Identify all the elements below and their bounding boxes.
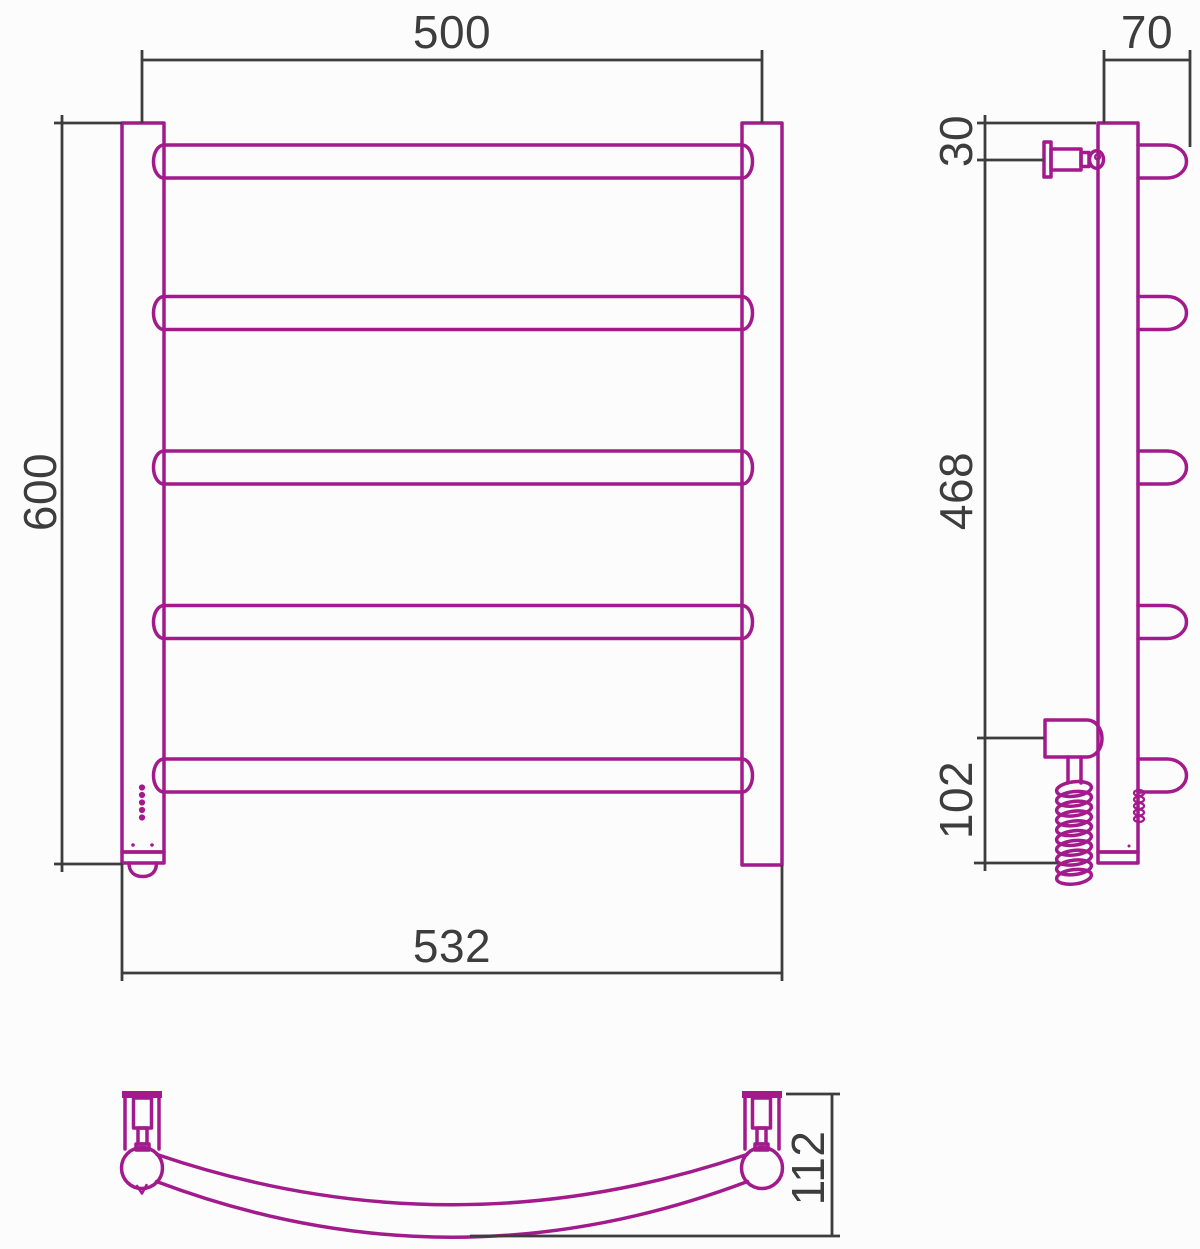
dim-label-side-span: 468 xyxy=(930,452,982,530)
led-dot xyxy=(139,799,145,805)
top-left-wall-flange xyxy=(122,1091,162,1098)
led-dot xyxy=(139,814,145,820)
dim-label-side-bottom-offset: 102 xyxy=(930,761,982,839)
dim-label-side-top-offset: 30 xyxy=(930,115,982,167)
side-screw-dot xyxy=(1128,845,1131,848)
led-dot xyxy=(139,807,145,813)
dim-label-top-depth: 112 xyxy=(782,1131,834,1206)
led-dot xyxy=(139,792,145,798)
front-screw-dot xyxy=(150,843,154,847)
towel-rail-technical-drawing: 500 600 532 70 30 468 102 112 xyxy=(0,0,1200,1249)
dim-label-front-overall-width: 532 xyxy=(413,920,491,972)
front-screw-dot xyxy=(131,843,135,847)
dim-label-front-width: 500 xyxy=(413,6,491,58)
dim-label-side-depth: 70 xyxy=(1121,6,1173,58)
dim-label-front-height: 600 xyxy=(14,453,66,531)
led-dot xyxy=(139,784,145,790)
top-right-wall-flange xyxy=(742,1091,782,1098)
sheet-background xyxy=(0,0,1200,1249)
drawing-sheet: 500 600 532 70 30 468 102 112 xyxy=(0,0,1200,1249)
